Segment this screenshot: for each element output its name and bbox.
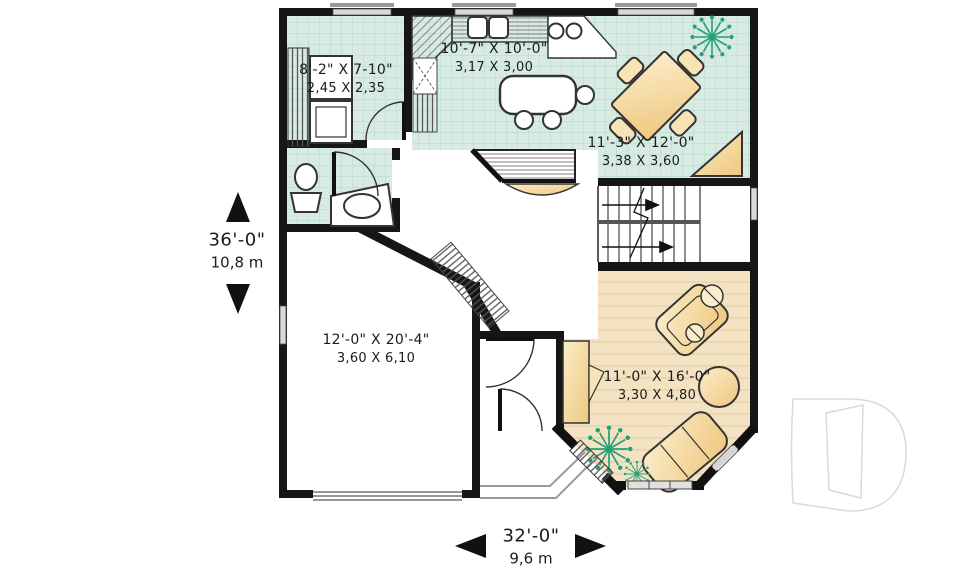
toilet-icon bbox=[295, 164, 317, 190]
fireplace bbox=[563, 341, 589, 423]
kitchen-island bbox=[500, 76, 576, 114]
living-metric: 3,30 X 4,80 bbox=[603, 387, 710, 405]
staircase bbox=[598, 186, 700, 262]
kitchen-bar-counter bbox=[475, 150, 575, 180]
stair-direction-arrows bbox=[602, 200, 672, 252]
living-dimensions-label: 11'-0" X 16'-0" 3,30 X 4,80 bbox=[603, 368, 710, 404]
laundry-dimensions-label: 8'-2" X 7-10" 2,45 X 2,35 bbox=[299, 61, 393, 97]
dining-metric: 3,38 X 3,60 bbox=[587, 153, 694, 171]
width-metric: 9,6 m bbox=[502, 549, 559, 569]
dining-dimensions-label: 11'-3" X 12'-0" 3,38 X 3,60 bbox=[587, 134, 694, 170]
garage-imperial: 12'-0" X 20'-4" bbox=[322, 331, 429, 350]
garage-dimensions-label: 12'-0" X 20'-4" 3,60 X 6,10 bbox=[322, 331, 429, 367]
kitchen-imperial: 10'-7" X 10'-0" bbox=[440, 40, 547, 59]
living-imperial: 11'-0" X 16'-0" bbox=[603, 368, 710, 387]
depth-metric: 10,8 m bbox=[208, 253, 265, 273]
kitchen-metric: 3,17 X 3,00 bbox=[440, 59, 547, 77]
bay-window-pane bbox=[628, 481, 692, 489]
floor-plan-svg bbox=[0, 0, 960, 569]
overall-depth-label: 36'-0" 10,8 m bbox=[208, 229, 265, 274]
laundry-metric: 2,45 X 2,35 bbox=[299, 80, 393, 98]
kitchen-sink-icon bbox=[489, 17, 508, 38]
kitchen-sink-icon bbox=[468, 17, 487, 38]
builder-logo-d bbox=[792, 399, 907, 511]
stool-icon bbox=[543, 111, 561, 129]
garage-door bbox=[313, 492, 462, 496]
stool-icon bbox=[576, 86, 594, 104]
kitchen-dimensions-label: 10'-7" X 10'-0" 3,17 X 3,00 bbox=[440, 40, 547, 76]
dining-imperial: 11'-3" X 12'-0" bbox=[587, 134, 694, 153]
garage-metric: 3,60 X 6,10 bbox=[322, 350, 429, 368]
cooktop-burner-icon bbox=[549, 24, 564, 39]
depth-imperial: 36'-0" bbox=[208, 229, 265, 253]
sink-icon bbox=[344, 194, 380, 218]
stool-icon bbox=[515, 111, 533, 129]
width-imperial: 32'-0" bbox=[502, 525, 559, 549]
bar-ledge bbox=[506, 184, 578, 195]
overall-width-label: 32'-0" 9,6 m bbox=[502, 525, 559, 569]
cooktop-burner-icon bbox=[567, 24, 582, 39]
basement-stairs-hatch bbox=[431, 242, 509, 328]
laundry-imperial: 8'-2" X 7-10" bbox=[299, 61, 393, 80]
floor-plan-page: 8'-2" X 7-10" 2,45 X 2,35 10'-7" X 10'-0… bbox=[0, 0, 960, 569]
